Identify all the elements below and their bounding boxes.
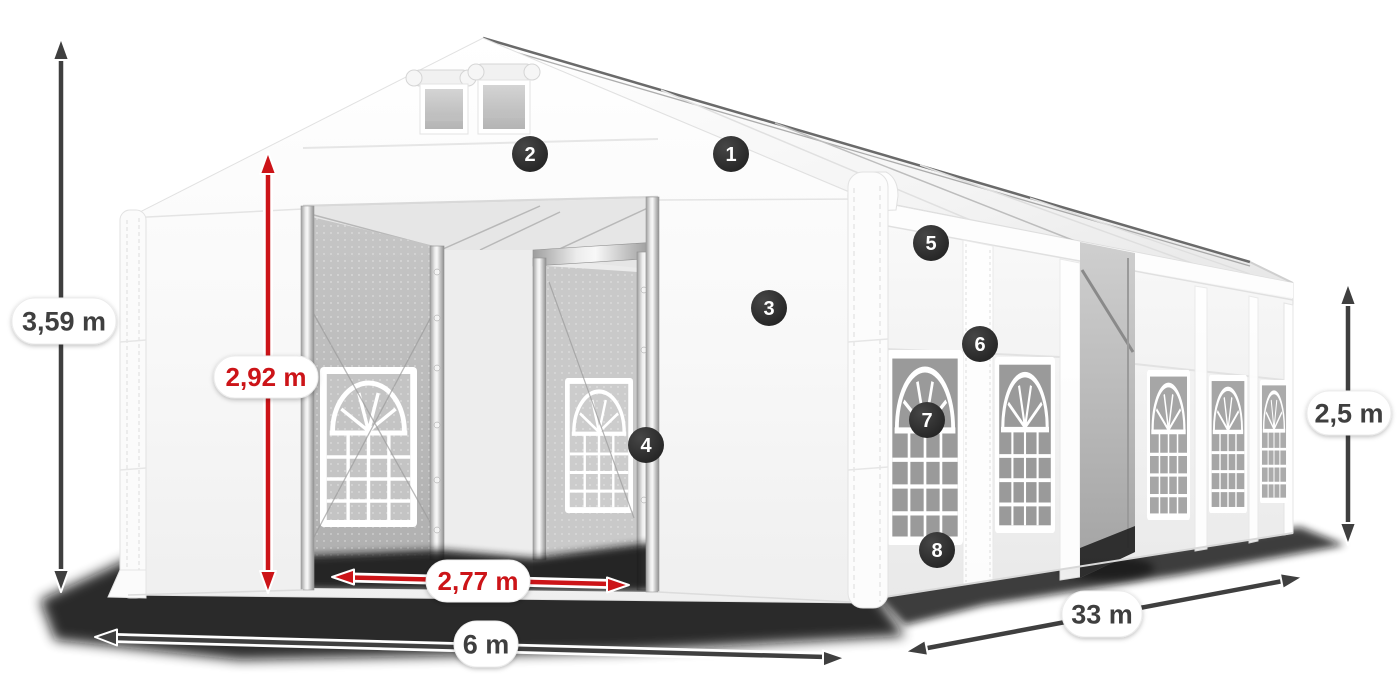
arrow-left-icon [904, 640, 929, 660]
dimension-label: 2,92 m [226, 362, 307, 392]
inner-frame-pole [430, 246, 444, 560]
badge-number: 2 [524, 144, 535, 166]
side-door-opening [1080, 242, 1135, 578]
dimension-label: 2,5 m [1314, 398, 1383, 428]
side-window-3 [1147, 370, 1190, 520]
side-window-1 [887, 350, 963, 545]
hotspot-badge-3[interactable]: 3 [751, 290, 787, 326]
front-entrance-opening [303, 198, 658, 592]
tent-diagram-canvas: 3,59 m 2,92 m 2,77 m 6 m 33 m [0, 0, 1400, 700]
badge-number: 5 [925, 233, 936, 255]
dimension-label: 3,59 m [22, 306, 106, 336]
badge-number: 4 [640, 435, 652, 457]
arrow-right-icon [823, 651, 845, 667]
entrance-pole-left [301, 206, 314, 590]
arrow-up-icon [53, 38, 69, 60]
hotspot-badge-4[interactable]: 4 [628, 427, 664, 463]
front-left-corner-post [108, 210, 146, 598]
dimension-total-height: 3,59 m [12, 38, 116, 592]
hotspot-badge-8[interactable]: 8 [919, 532, 955, 568]
dimension-label: 6 m [463, 629, 510, 659]
hotspot-badge-1[interactable]: 1 [713, 136, 749, 172]
badge-number: 3 [763, 298, 774, 320]
badge-number: 7 [921, 410, 932, 432]
side-window-4 [1209, 375, 1247, 513]
side-window-5 [1260, 380, 1288, 503]
hotspot-badge-2[interactable]: 2 [512, 136, 548, 172]
badge-number: 8 [931, 540, 942, 562]
arrow-up-icon [1340, 283, 1356, 305]
badge-number: 6 [974, 334, 985, 356]
inner-partition-right [533, 242, 658, 590]
hotspot-badge-5[interactable]: 5 [913, 225, 949, 261]
tent-illustration [108, 38, 1293, 608]
hotspot-badge-6[interactable]: 6 [962, 326, 998, 362]
tent-dimensions-diagram: 3,59 m 2,92 m 2,77 m 6 m 33 m [0, 0, 1400, 700]
arrow-down-icon [1340, 523, 1356, 545]
badge-number: 1 [725, 144, 736, 166]
gable-vent-right [468, 64, 540, 134]
dimension-label: 33 m [1071, 599, 1133, 629]
dimension-label: 2,77 m [438, 566, 519, 596]
hotspot-badge-7[interactable]: 7 [909, 402, 945, 438]
inner-partition-left [303, 215, 443, 562]
dimension-side-height: 2,5 m [1307, 283, 1391, 545]
arrow-right-icon [1280, 569, 1305, 589]
entrance-pole-right [646, 197, 659, 592]
side-window-2 [995, 357, 1055, 533]
